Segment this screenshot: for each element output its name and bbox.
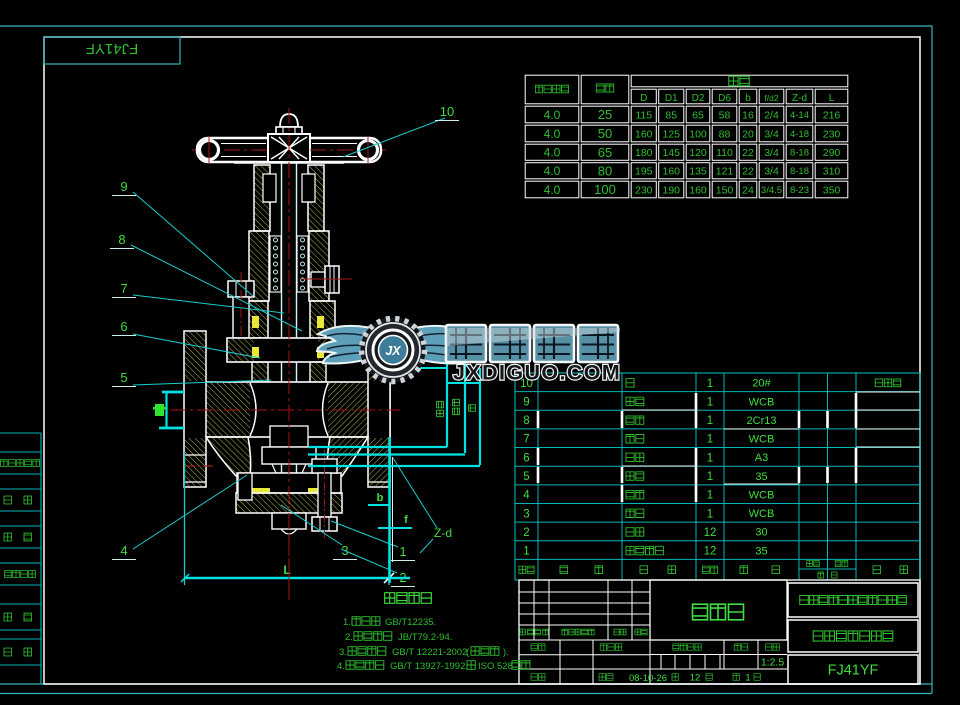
svg-text:4: 4 xyxy=(120,543,127,558)
svg-text:35: 35 xyxy=(755,545,767,557)
svg-text:4.0: 4.0 xyxy=(544,146,561,160)
svg-text:L: L xyxy=(283,563,290,577)
svg-text:85: 85 xyxy=(665,109,677,121)
svg-text:WCB: WCB xyxy=(749,508,775,520)
svg-text:Z-d: Z-d xyxy=(792,93,807,104)
svg-text:350: 350 xyxy=(823,184,841,196)
svg-text:D: D xyxy=(640,93,647,104)
svg-text:2/4: 2/4 xyxy=(764,109,779,121)
svg-text:2: 2 xyxy=(523,527,529,539)
svg-text:190: 190 xyxy=(662,184,680,196)
svg-text:310: 310 xyxy=(823,166,841,178)
svg-text:L: L xyxy=(829,93,835,104)
svg-text:8-18: 8-18 xyxy=(790,166,809,177)
svg-text:WCB: WCB xyxy=(749,396,775,408)
svg-text:3/4: 3/4 xyxy=(764,147,779,159)
svg-text:D6: D6 xyxy=(718,93,731,104)
svg-text:135: 135 xyxy=(689,166,707,178)
svg-text:4.0: 4.0 xyxy=(544,127,561,141)
svg-text:88: 88 xyxy=(719,128,731,140)
svg-text:9: 9 xyxy=(120,179,127,194)
svg-text:3/4: 3/4 xyxy=(764,166,779,178)
svg-text:160: 160 xyxy=(662,166,680,178)
svg-text:5: 5 xyxy=(120,370,127,385)
svg-text:GB/T 13927-1992,: GB/T 13927-1992, xyxy=(390,661,468,672)
svg-text:ISO 528: ISO 528 xyxy=(478,661,513,672)
svg-text:8: 8 xyxy=(118,232,125,247)
svg-text:JX: JX xyxy=(385,344,401,358)
svg-text:JB/T79.2-94.: JB/T79.2-94. xyxy=(398,632,452,643)
svg-text:f: f xyxy=(404,514,408,526)
svg-text:3/4: 3/4 xyxy=(764,128,779,140)
svg-text:3: 3 xyxy=(523,508,529,520)
svg-text:24: 24 xyxy=(742,184,754,196)
svg-text:30: 30 xyxy=(755,527,767,539)
svg-text:4.: 4. xyxy=(337,661,345,672)
svg-text:2Cr13: 2Cr13 xyxy=(747,415,777,427)
svg-text:4.0: 4.0 xyxy=(544,183,561,197)
svg-text:1: 1 xyxy=(745,673,750,684)
svg-text:35: 35 xyxy=(755,471,767,483)
svg-text:5: 5 xyxy=(523,471,529,483)
svg-text:4.0: 4.0 xyxy=(544,108,561,122)
svg-text:7: 7 xyxy=(523,434,529,446)
svg-text:22: 22 xyxy=(742,166,754,178)
svg-text:4.0: 4.0 xyxy=(544,164,561,178)
svg-text:GB/T12235.: GB/T12235. xyxy=(385,617,436,628)
svg-text:1: 1 xyxy=(707,378,713,390)
svg-text:195: 195 xyxy=(635,166,653,178)
svg-text:20#: 20# xyxy=(752,378,771,390)
svg-text:100: 100 xyxy=(594,182,616,197)
svg-text:9: 9 xyxy=(523,396,529,408)
svg-text:2.: 2. xyxy=(345,632,353,643)
svg-text:8-18: 8-18 xyxy=(790,148,809,159)
svg-text:D1: D1 xyxy=(665,93,678,104)
svg-text:1.: 1. xyxy=(343,617,351,628)
svg-text:1: 1 xyxy=(707,471,713,483)
svg-text:120: 120 xyxy=(689,147,707,159)
svg-text:7: 7 xyxy=(120,281,127,296)
svg-text:125: 125 xyxy=(662,128,680,140)
svg-text:100: 100 xyxy=(689,128,707,140)
svg-text:58: 58 xyxy=(719,109,731,121)
svg-text:f/d2: f/d2 xyxy=(764,93,778,103)
svg-text:4-14: 4-14 xyxy=(790,110,809,121)
svg-text:20: 20 xyxy=(742,128,754,140)
svg-text:160: 160 xyxy=(635,128,653,140)
svg-text:WCB: WCB xyxy=(749,489,775,501)
svg-text:50: 50 xyxy=(598,126,612,141)
svg-text:4: 4 xyxy=(523,490,530,502)
svg-text:10: 10 xyxy=(440,104,454,119)
svg-text:1: 1 xyxy=(523,546,529,558)
svg-text:12: 12 xyxy=(704,546,717,558)
svg-text:1: 1 xyxy=(707,508,713,520)
svg-text:25: 25 xyxy=(598,107,612,122)
svg-text:b: b xyxy=(377,492,384,504)
svg-text:180: 180 xyxy=(635,147,653,159)
svg-text:8-23: 8-23 xyxy=(790,185,809,196)
svg-text:12: 12 xyxy=(690,673,701,684)
svg-text:JXDIGUO.COM: JXDIGUO.COM xyxy=(453,361,621,385)
svg-text:230: 230 xyxy=(823,128,841,140)
svg-text:1: 1 xyxy=(707,396,713,408)
svg-text:(: ( xyxy=(466,647,470,658)
svg-text:115: 115 xyxy=(635,109,652,121)
svg-text:08-10-26: 08-10-26 xyxy=(629,673,667,684)
svg-text:121: 121 xyxy=(716,166,734,178)
svg-text:1: 1 xyxy=(707,490,713,502)
svg-text:b: b xyxy=(745,93,751,104)
svg-text:6: 6 xyxy=(120,319,127,334)
svg-text:230: 230 xyxy=(635,184,653,196)
svg-text:65: 65 xyxy=(692,109,704,121)
svg-text:110: 110 xyxy=(716,147,733,159)
svg-text:D2: D2 xyxy=(692,93,705,104)
svg-text:12: 12 xyxy=(704,527,717,539)
svg-text:65: 65 xyxy=(598,145,612,160)
svg-text:80: 80 xyxy=(598,163,612,178)
svg-text:FJ41YF: FJ41YF xyxy=(86,40,139,57)
svg-text:160: 160 xyxy=(689,184,707,196)
svg-text:WCB: WCB xyxy=(749,434,775,446)
svg-text:22: 22 xyxy=(742,147,754,159)
svg-text:1: 1 xyxy=(707,452,713,464)
svg-text:1:2.5: 1:2.5 xyxy=(761,657,785,669)
svg-text:3/4.5: 3/4.5 xyxy=(761,185,782,196)
svg-text:16: 16 xyxy=(742,109,754,121)
svg-text:FJ41YF: FJ41YF xyxy=(828,663,879,679)
svg-text:1: 1 xyxy=(399,544,406,559)
svg-text:3.: 3. xyxy=(339,647,347,658)
svg-text:GB/T 12221-2002: GB/T 12221-2002 xyxy=(392,647,467,658)
svg-text:145: 145 xyxy=(662,147,680,159)
svg-text:1: 1 xyxy=(707,434,713,446)
svg-text:1: 1 xyxy=(707,415,713,427)
svg-text:150: 150 xyxy=(716,184,734,196)
svg-text:).: ). xyxy=(503,647,509,658)
svg-text:216: 216 xyxy=(823,109,841,121)
svg-text:8: 8 xyxy=(523,415,529,427)
svg-text:6: 6 xyxy=(523,452,529,464)
svg-text:4-18: 4-18 xyxy=(790,129,809,140)
svg-text:A3: A3 xyxy=(755,452,768,464)
svg-text:290: 290 xyxy=(823,147,841,159)
